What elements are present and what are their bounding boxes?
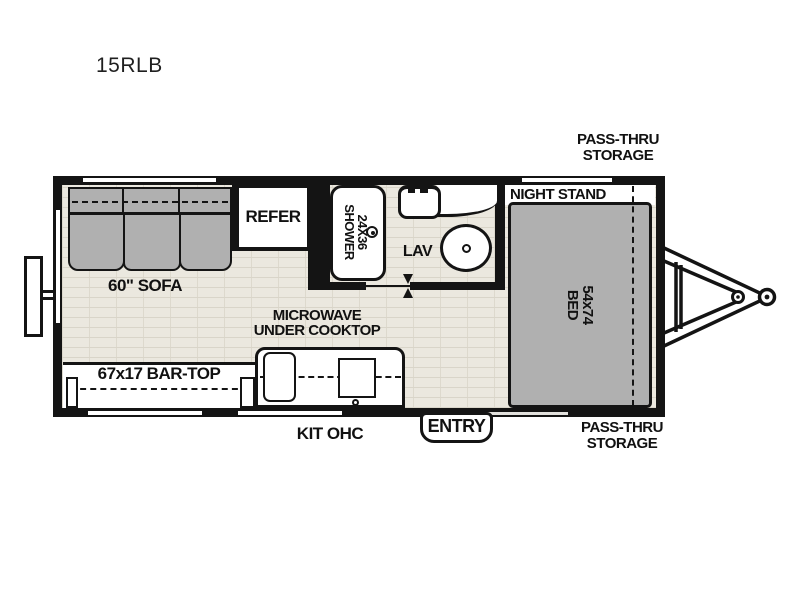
toilet-flush-icon bbox=[462, 244, 471, 253]
bar-support-right bbox=[240, 377, 255, 408]
pass-thru-storage-top-label: PASS-THRU STORAGE bbox=[543, 132, 693, 164]
pass-thru-bottom-line1: PASS-THRU bbox=[547, 420, 697, 436]
lav-label: LAV bbox=[395, 244, 440, 260]
bed-label: 54x74 BED bbox=[565, 285, 595, 324]
bar-support-left bbox=[66, 377, 78, 408]
rear-spare-mount bbox=[24, 256, 43, 337]
trailer-hitch-icon bbox=[663, 236, 785, 358]
bed-label-line1: 54x74 bbox=[580, 285, 595, 324]
sofa-cushion-left bbox=[68, 213, 125, 271]
bath-door-hinge-icon bbox=[403, 274, 413, 298]
microwave-label-line2: UNDER COOKTOP bbox=[237, 323, 397, 338]
lav-counter bbox=[437, 185, 497, 217]
bar-top-dashed-line bbox=[70, 388, 248, 390]
shower-label-line2: SHOWER bbox=[343, 204, 356, 260]
microwave-label-line1: MICROWAVE bbox=[237, 308, 397, 323]
kitchen-sink bbox=[263, 352, 296, 402]
faucet-icon-left bbox=[408, 185, 415, 193]
window-bottom-bar bbox=[88, 411, 202, 415]
sofa-cushion-middle bbox=[123, 213, 181, 271]
window-top-sofa bbox=[83, 178, 216, 182]
sofa-back-dashed-line bbox=[72, 201, 228, 203]
window-top-bedroom bbox=[522, 178, 612, 182]
bed-label-line2: BED bbox=[565, 285, 580, 324]
cooktop-knob-icon bbox=[352, 399, 359, 406]
pass-thru-storage-bottom-label: PASS-THRU STORAGE bbox=[547, 420, 697, 452]
sofa-cushion-right bbox=[179, 213, 232, 271]
trailer-outline: 60" SOFA REFER 24X36 SHOWER LAV bbox=[53, 176, 665, 417]
bar-top-label: 67x17 BAR-TOP bbox=[63, 366, 255, 382]
shower-drain-dot bbox=[371, 231, 375, 235]
cooktop bbox=[338, 358, 376, 398]
window-rear bbox=[56, 210, 60, 323]
window-bottom-kitchen bbox=[238, 411, 342, 415]
bath-wall-bottom-left bbox=[308, 282, 366, 290]
kit-ohc-label: KIT OHC bbox=[268, 426, 392, 442]
faucet-icon-right bbox=[420, 185, 428, 193]
bath-wall-left bbox=[308, 185, 330, 290]
pass-thru-bottom-line2: STORAGE bbox=[547, 436, 697, 452]
shower-drain-icon bbox=[366, 226, 378, 238]
refer-label: REFER bbox=[238, 209, 308, 225]
pass-thru-top-line2: STORAGE bbox=[543, 148, 693, 164]
pass-thru-divider-dashed-line bbox=[632, 186, 634, 406]
night-stand-label: NIGHT STAND bbox=[510, 187, 606, 203]
bath-wall-bottom-right bbox=[410, 282, 505, 290]
sofa-label: 60" SOFA bbox=[85, 278, 205, 294]
pass-thru-top-line1: PASS-THRU bbox=[543, 132, 693, 148]
microwave-label: MICROWAVE UNDER COOKTOP bbox=[237, 308, 397, 338]
floorplan-canvas: 15RLB PASS-THRU STORAGE PASS-THRU STORAG… bbox=[0, 0, 800, 600]
floorplan-title: 15RLB bbox=[96, 54, 163, 78]
entry-label: ENTRY bbox=[420, 418, 493, 434]
